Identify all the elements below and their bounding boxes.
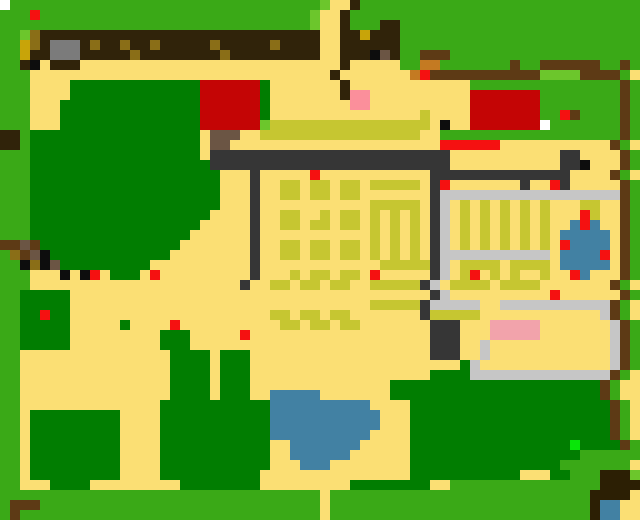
tile-tree-dark-green xyxy=(160,430,270,440)
tile-tree-dark-green xyxy=(110,270,140,280)
tile-sand-path xyxy=(70,310,270,320)
tile-stone-wall-dark xyxy=(250,230,260,240)
tile-grass-green xyxy=(630,60,640,70)
tile-fence-brown xyxy=(620,190,630,200)
tile-tree-dark-green xyxy=(170,380,210,390)
tile-greenhouse-gray xyxy=(610,330,620,340)
tile-sand-path xyxy=(90,480,180,490)
tile-sand-path xyxy=(540,320,610,330)
tile-fence-brown xyxy=(620,440,630,450)
tile-sand-path xyxy=(20,360,170,370)
tile-sand-path xyxy=(230,140,440,150)
tile-treeline-dark-brown xyxy=(340,10,350,20)
tile-grass-green xyxy=(630,210,640,220)
tile-stone-wall-dark xyxy=(430,320,460,330)
tile-white-door xyxy=(0,0,10,10)
tile-greenhouse-gray xyxy=(430,280,440,290)
tile-grass-green xyxy=(0,160,30,170)
tile-sand-path xyxy=(20,350,170,360)
tile-tree-dark-green xyxy=(160,330,190,340)
tile-fence-brown xyxy=(10,500,40,510)
tile-grass-green xyxy=(330,490,590,500)
tile-grass-green xyxy=(630,360,640,370)
doghouse-orange[interactable] xyxy=(420,60,440,80)
tile-grass-light xyxy=(310,10,320,20)
tile-grass-green xyxy=(630,90,640,100)
tile-grass-green xyxy=(440,130,620,140)
tile-grass-green xyxy=(630,330,640,340)
tile-dark-chocolate xyxy=(590,510,600,520)
tile-sand-path xyxy=(460,320,490,330)
tile-treeline-dark-brown xyxy=(340,20,350,30)
tile-stone-wall-dark xyxy=(430,240,440,250)
tile-fruit-gold xyxy=(20,50,30,60)
tile-tree-dark-green xyxy=(50,310,70,320)
barn-red-roof[interactable] xyxy=(470,90,540,130)
tile-sand-path xyxy=(370,100,470,110)
tile-fence-brown xyxy=(10,510,20,520)
tile-treeline-dark-brown xyxy=(0,140,20,150)
tile-grass-green xyxy=(330,510,590,520)
tile-grass-green xyxy=(0,180,30,190)
tile-grass-green xyxy=(620,370,630,380)
tile-tree-dark-green xyxy=(30,420,120,430)
tile-fence-brown xyxy=(610,310,620,320)
tile-grass-green xyxy=(630,80,640,90)
tile-grass-light xyxy=(310,20,320,30)
tile-fruit-gold xyxy=(20,40,30,50)
tile-tree-dark-green xyxy=(220,390,250,400)
tile-sand-path xyxy=(570,180,620,190)
tile-tree-dark-green xyxy=(120,320,130,330)
tile-grass-green xyxy=(0,20,310,30)
tile-grass-green xyxy=(630,220,640,230)
tile-sand-path xyxy=(420,130,440,140)
tile-stone-wall-dark xyxy=(430,170,570,180)
tile-grass-green xyxy=(450,480,600,490)
tile-fence-brown xyxy=(620,340,630,350)
tile-fence-brown xyxy=(610,370,620,380)
crop-field[interactable] xyxy=(260,170,430,330)
tile-grass-green xyxy=(630,200,640,210)
tile-greenhouse-gray xyxy=(610,350,620,360)
tile-crop-olive xyxy=(420,110,430,120)
tile-sand-path xyxy=(500,140,610,150)
tile-grass-green xyxy=(620,400,630,410)
tile-grass-green xyxy=(0,200,30,210)
tile-sand-path xyxy=(530,180,550,190)
tile-sand-path xyxy=(570,170,610,180)
tile-grass-green xyxy=(630,230,640,240)
tile-sand-path xyxy=(140,270,150,280)
tile-grass-green xyxy=(0,440,20,450)
tile-grass-green xyxy=(550,120,620,130)
tile-stone-wall-dark xyxy=(520,180,530,190)
tile-sand-path xyxy=(630,370,640,380)
tile-dark-chocolate xyxy=(590,500,600,510)
tile-black-pixel xyxy=(30,60,40,70)
tile-grass-green xyxy=(620,140,630,150)
tile-grass-green xyxy=(40,10,310,20)
tile-grass-green xyxy=(630,240,640,250)
tile-tree-dark-green xyxy=(20,310,40,320)
tile-sand-path xyxy=(620,380,640,390)
tile-sand-path xyxy=(270,80,340,90)
tile-grass-green xyxy=(0,290,20,300)
tile-stone-wall-dark xyxy=(430,340,460,350)
tile-sand-path xyxy=(30,70,330,80)
tile-black-pixel xyxy=(80,270,90,280)
tile-sand-path xyxy=(70,320,120,330)
tile-sand-path xyxy=(20,470,30,480)
tile-berry-red xyxy=(30,10,40,20)
tile-grass-green xyxy=(0,210,30,220)
south-east-forest[interactable] xyxy=(410,380,620,470)
tile-fence-brown xyxy=(620,330,630,340)
tile-tree-dark-green xyxy=(170,390,210,400)
tile-fence-brown xyxy=(620,250,630,260)
tile-stone-wall-dark xyxy=(430,350,460,360)
tile-sand-path xyxy=(460,330,490,340)
top-right-fence[interactable] xyxy=(440,50,630,80)
tile-grass-green xyxy=(540,110,560,120)
tile-grass-green xyxy=(630,110,640,120)
stone-wall[interactable] xyxy=(210,150,450,170)
tile-sand-path xyxy=(630,410,640,420)
tile-grass-green xyxy=(630,120,640,130)
tile-tree-dark-green xyxy=(30,430,120,440)
bottom-right-water[interactable] xyxy=(600,470,640,520)
tile-grass-green xyxy=(620,300,630,310)
tile-tree-dark-green xyxy=(410,470,520,480)
tile-sand-path xyxy=(490,340,610,350)
tile-treeline-dark-brown xyxy=(340,90,350,100)
tile-sand-path xyxy=(20,390,170,400)
big-pond[interactable] xyxy=(270,390,380,470)
tile-grass-green xyxy=(0,270,30,280)
tile-grass-green xyxy=(0,390,20,400)
tile-grass-green xyxy=(0,490,320,500)
south-path-exit[interactable] xyxy=(320,490,330,520)
tile-sand-path xyxy=(630,70,640,80)
tile-grass-green xyxy=(0,400,20,410)
tile-grass-green xyxy=(20,130,30,140)
tile-stone-wall-dark xyxy=(250,250,260,260)
tile-berry-red xyxy=(560,110,570,120)
tile-fence-brown xyxy=(620,320,630,330)
tile-tree-dark-green xyxy=(160,440,270,450)
small-pond[interactable] xyxy=(560,220,610,280)
tile-fence-brown xyxy=(620,110,630,120)
tile-grass-green xyxy=(540,90,620,100)
tile-sand-path xyxy=(490,350,610,360)
tile-fence-brown xyxy=(610,170,620,180)
tile-sand-path xyxy=(210,360,220,370)
north-treeline[interactable] xyxy=(40,30,400,60)
tile-tree-dark-green xyxy=(160,410,270,420)
tile-sand-path xyxy=(210,380,220,390)
tile-sand-path xyxy=(210,350,220,360)
tile-grass-green xyxy=(630,150,640,160)
tile-grass-green xyxy=(0,430,20,440)
tile-tree-dark-green xyxy=(170,350,210,360)
tile-crop-olive xyxy=(430,310,480,320)
tile-tree-dark-green xyxy=(160,420,270,430)
tile-tree-dark-green xyxy=(170,370,210,380)
tile-sand-path xyxy=(210,370,220,380)
tile-grass-green xyxy=(360,0,640,10)
tile-grass-green xyxy=(0,40,20,50)
tile-sand-path xyxy=(480,360,610,370)
tile-sand-path xyxy=(20,460,30,470)
pink-block-shipping[interactable] xyxy=(490,320,540,340)
tile-grass-green xyxy=(630,440,640,450)
tile-grass-green xyxy=(0,280,30,290)
tile-berry-red xyxy=(440,140,500,150)
tile-grass-green xyxy=(0,340,20,350)
tile-sand-path xyxy=(220,170,250,180)
tile-grass-green xyxy=(630,290,640,300)
tile-sand-path xyxy=(450,150,560,160)
tile-stone-wall-dark xyxy=(250,260,260,270)
tile-grass-green xyxy=(0,450,20,460)
tile-black-pixel xyxy=(20,260,30,270)
tile-fence-brown xyxy=(620,290,630,300)
tile-tree-dark-green xyxy=(160,470,260,480)
tile-sand-path xyxy=(100,270,110,280)
tile-sand-path xyxy=(460,340,480,350)
tile-tree-dark-green xyxy=(160,450,270,460)
tile-grass-green xyxy=(0,80,30,90)
tile-fence-brown xyxy=(610,140,620,150)
tile-grass-green xyxy=(0,330,20,340)
tile-fence-brown xyxy=(620,130,630,140)
tile-tree-dark-green xyxy=(160,460,270,470)
tile-crop-olive xyxy=(260,130,420,140)
tile-sand-path xyxy=(430,110,470,120)
tile-grass-green xyxy=(40,500,320,510)
tile-sand-path xyxy=(370,90,470,100)
tile-stone-wall-dark xyxy=(250,200,260,210)
tile-berry-red xyxy=(90,270,100,280)
tile-grass-green xyxy=(0,310,20,320)
tile-berry-red xyxy=(170,320,180,330)
tile-sand-path xyxy=(20,410,30,420)
tile-fence-brown xyxy=(620,120,630,130)
tile-grass-green xyxy=(0,260,20,270)
tile-greenhouse-gray xyxy=(470,360,480,370)
tile-grass-green xyxy=(0,50,20,60)
tile-sand-path xyxy=(30,270,60,280)
tile-fence-brown xyxy=(620,270,630,280)
tile-grass-green xyxy=(0,170,30,180)
tile-fence-brown xyxy=(620,150,630,160)
tile-tree-dark-green xyxy=(220,370,250,380)
tile-sand-path xyxy=(620,390,640,400)
tile-grass-green xyxy=(0,460,20,470)
tile-sand-path xyxy=(120,430,160,440)
tile-sand-path xyxy=(260,480,350,490)
tile-fence-brown xyxy=(620,240,630,250)
tile-grass-green xyxy=(0,90,30,100)
tile-grass-green xyxy=(0,100,30,110)
tile-grass-light xyxy=(260,120,270,130)
tile-doghouse-orange xyxy=(410,70,420,80)
tile-sand-path xyxy=(120,460,160,470)
tile-sand-path xyxy=(40,60,50,70)
tile-sand-path xyxy=(270,110,420,120)
tile-fence-brown xyxy=(620,230,630,240)
tile-sand-path xyxy=(220,200,250,210)
tile-treeline-dark-brown xyxy=(350,0,360,10)
tile-grass-green xyxy=(630,270,640,280)
tile-stone-wall-dark xyxy=(250,220,260,230)
tile-tree-dark-green xyxy=(260,110,270,120)
tile-treeline-dark-brown xyxy=(20,60,30,70)
tile-fence-brown xyxy=(620,90,630,100)
tile-tree-dark-green xyxy=(180,480,260,490)
tile-treeline-dark-brown xyxy=(380,20,400,30)
tile-sand-path xyxy=(70,340,160,350)
tile-grass-green xyxy=(630,100,640,110)
tile-tree-dark-green xyxy=(20,290,70,300)
tile-grass-light xyxy=(20,30,30,40)
tile-sand-path xyxy=(20,440,30,450)
tile-sand-path xyxy=(430,480,450,490)
tile-grass-green xyxy=(0,380,20,390)
tile-grass-green xyxy=(570,470,600,480)
tile-tree-dark-green xyxy=(30,450,120,460)
tile-grass-green xyxy=(0,360,20,370)
tile-sand-path xyxy=(120,450,160,460)
tile-sand-path xyxy=(120,470,160,480)
tile-grass-green xyxy=(0,350,20,360)
tile-sand-path xyxy=(350,60,400,70)
tile-sand-path xyxy=(450,180,520,190)
tile-sand-path xyxy=(630,430,640,440)
tile-fence-brown xyxy=(620,80,630,90)
north-path-exit[interactable] xyxy=(320,0,340,70)
tile-sand-path xyxy=(70,330,160,340)
tile-sand-path xyxy=(520,470,550,480)
tile-sand-path xyxy=(270,100,350,110)
tile-sand-path xyxy=(20,380,170,390)
tile-sand-path xyxy=(590,160,620,170)
tile-sand-path xyxy=(190,330,240,340)
tile-sand-path xyxy=(120,410,160,420)
tile-greenhouse-gray xyxy=(470,370,610,380)
tile-stone-wall-dark xyxy=(250,210,260,220)
tile-tree-dark-green xyxy=(260,90,270,100)
tile-canopy-olive xyxy=(30,40,40,50)
tile-grass-green xyxy=(400,30,640,40)
tile-tree-dark-green xyxy=(350,480,430,490)
tile-stone-wall-dark xyxy=(430,230,440,240)
tile-tree-dark-green xyxy=(220,350,250,360)
tile-grass-green xyxy=(630,160,640,170)
tile-grass-green xyxy=(470,80,620,90)
tile-stone-wall-dark xyxy=(430,290,440,300)
tile-tree-dark-green xyxy=(170,360,210,370)
tile-grass-green xyxy=(0,60,20,70)
tile-treeline-dark-brown xyxy=(340,80,350,90)
tile-grass-green xyxy=(400,60,420,70)
tile-stone-wall-dark xyxy=(430,220,440,230)
tile-tree-dark-green xyxy=(260,100,270,110)
tile-fence-brown xyxy=(620,100,630,110)
tile-stone-wall-dark xyxy=(430,250,440,260)
barn-white-door[interactable] xyxy=(540,120,550,130)
tile-tree-dark-green xyxy=(20,300,70,310)
tile-sand-path xyxy=(630,420,640,430)
tile-black-pixel xyxy=(60,270,70,280)
tile-tree-dark-green xyxy=(260,80,270,90)
tile-grass-green xyxy=(0,420,20,430)
tile-grass-green xyxy=(620,420,630,430)
tile-treeline-dark-brown xyxy=(50,60,80,70)
tile-sand-path xyxy=(240,130,260,140)
tile-sand-path xyxy=(220,190,250,200)
tile-fence-brown xyxy=(620,260,630,270)
tile-greenhouse-gray xyxy=(610,340,620,350)
tile-berry-red xyxy=(150,270,160,280)
tile-tree-dark-green xyxy=(30,440,120,450)
farm-map[interactable] xyxy=(0,0,640,520)
tile-tree-dark-green xyxy=(30,470,120,480)
tile-fence-brown xyxy=(0,240,20,250)
tile-grass-green xyxy=(400,40,640,50)
tile-stone-wall-dark xyxy=(560,160,580,170)
tile-grass-green xyxy=(400,50,420,60)
tile-sand-path xyxy=(120,440,160,450)
tile-tree-dark-green xyxy=(430,370,470,380)
tile-grass-green xyxy=(0,10,30,20)
tile-grass-green xyxy=(540,100,620,110)
tile-sand-path xyxy=(450,160,560,170)
tile-grass-green xyxy=(0,120,30,130)
tile-berry-red xyxy=(40,310,50,320)
tile-sand-path xyxy=(220,180,250,190)
garden-boxes[interactable] xyxy=(460,260,550,290)
tile-tree-dark-green xyxy=(50,480,90,490)
tile-sand-path xyxy=(20,450,30,460)
tile-porch-brown xyxy=(20,240,30,250)
tile-sand-path xyxy=(260,470,410,480)
tile-treeline-dark-brown xyxy=(330,70,340,80)
tile-sand-path xyxy=(250,360,460,370)
tile-grass-green xyxy=(0,470,20,480)
tile-berry-red xyxy=(550,180,560,190)
tile-sand-path xyxy=(70,270,80,280)
tile-grass-green xyxy=(630,180,640,190)
tile-stone-wall-dark xyxy=(250,170,260,180)
tile-tree-dark-green xyxy=(160,400,270,410)
tile-sand-path xyxy=(450,120,470,130)
tile-sand-path xyxy=(630,460,640,470)
tile-stone-wall-dark xyxy=(560,150,580,160)
tile-grass-green xyxy=(0,320,20,330)
tile-sand-path xyxy=(250,330,430,340)
tile-grass-green xyxy=(630,350,640,360)
tile-grass-green xyxy=(400,20,640,30)
tile-grass-green xyxy=(350,10,640,20)
tile-grass-green xyxy=(620,310,630,320)
west-forest[interactable] xyxy=(30,80,220,270)
pink-mat[interactable] xyxy=(350,90,370,110)
tile-sand-path xyxy=(540,330,610,340)
tile-stone-wall-dark xyxy=(240,280,250,290)
tile-tree-dark-green xyxy=(220,380,250,390)
